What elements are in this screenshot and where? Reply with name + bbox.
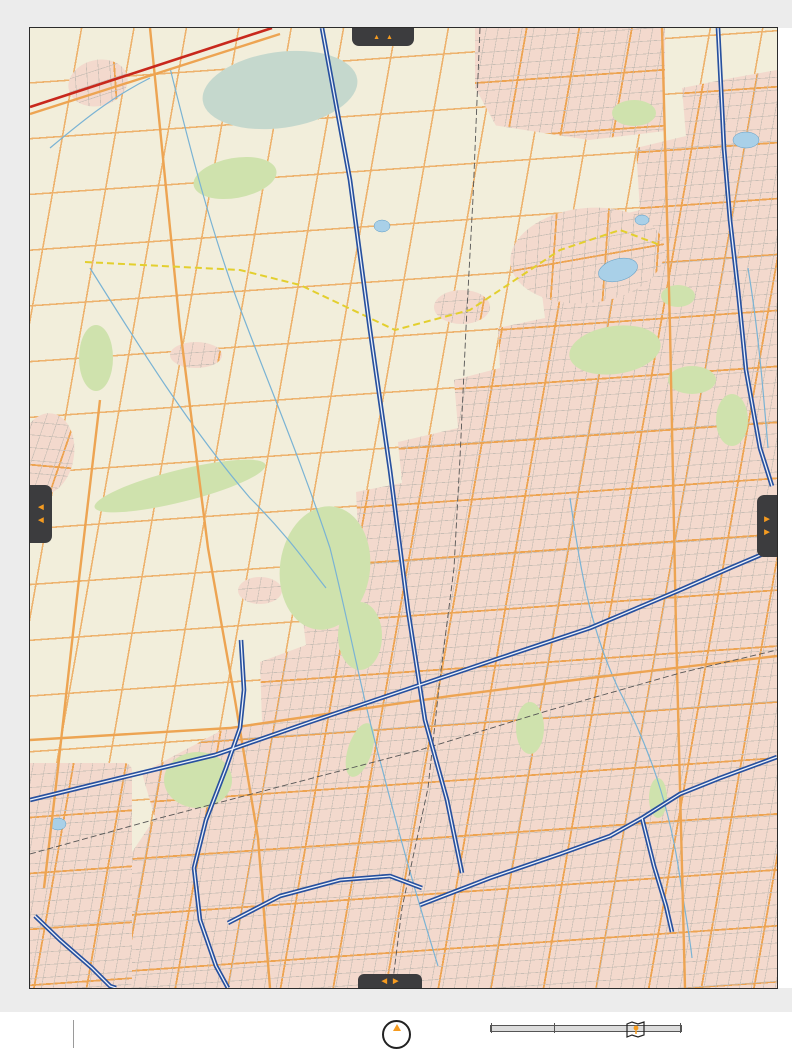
adjacent-map-tab-bottom: ◀ ▶: [358, 974, 422, 988]
scale-bar: [490, 1025, 682, 1032]
adjacent-map-tab-left: ◀ ◀: [30, 485, 52, 543]
scale-tick: [680, 1023, 681, 1033]
arrow-left-icon: ◀: [38, 517, 43, 524]
arrow-right-icon: ▶: [393, 978, 398, 985]
arrow-right-icon: ▶: [764, 516, 769, 523]
arrow-up-icon: ▲: [373, 34, 380, 41]
bottom-band: [0, 988, 792, 1012]
divider: [73, 1020, 74, 1048]
arrow-right-icon: ▶: [764, 529, 769, 536]
scale-tick: [554, 1023, 555, 1033]
adjacent-map-tab-top: ▲ ▲: [352, 28, 414, 46]
arrow-left-icon: ◀: [38, 504, 43, 511]
arrow-up-icon: ▲: [386, 34, 393, 41]
north-arrow-icon: [382, 1020, 411, 1049]
north-triangle-icon: [393, 1024, 401, 1031]
map-book-icon: [626, 1021, 645, 1038]
top-band: [0, 0, 792, 28]
scale-tick: [491, 1023, 492, 1033]
left-band: [0, 28, 30, 988]
adjacent-map-tab-right: ▶ ▶: [757, 495, 777, 557]
arrow-left-icon: ◀: [382, 978, 387, 985]
map-canvas[interactable]: [30, 28, 777, 988]
map-labels: [30, 28, 777, 988]
footer: [0, 1012, 792, 1056]
